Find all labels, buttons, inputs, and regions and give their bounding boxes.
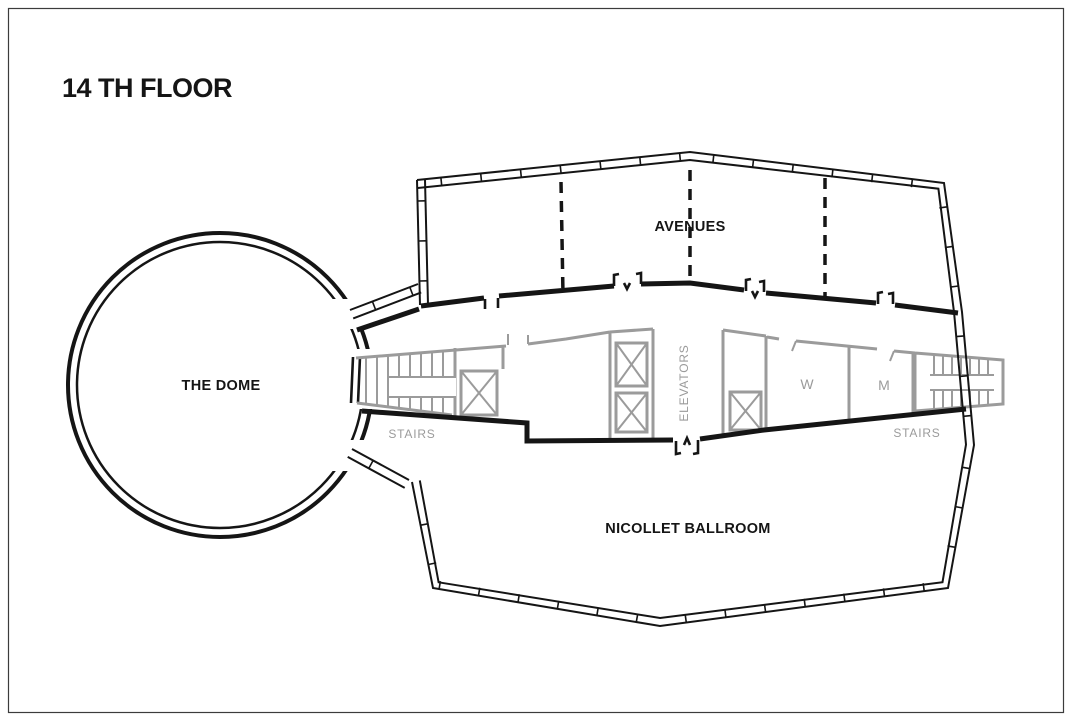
dome-label: THE DOME [182,378,261,394]
avenues-label: AVENUES [654,219,725,235]
elevators-label: ELEVATORS [677,344,691,421]
women-restroom-label: W [800,376,814,392]
dome-upper-opening [330,299,364,329]
ballroom-label: NICOLLET BALLROOM [605,521,770,537]
floor-plan-svg: 14 TH FLOOR THE DOME AVENUES NICOLLET BA… [0,0,1072,721]
stairs-left-label: STAIRS [388,427,435,441]
dome-lower-opening [330,440,364,471]
stairs-right-label: STAIRS [893,426,940,440]
floor-title: 14 TH FLOOR [62,73,232,103]
men-restroom-label: M [878,377,890,393]
page-frame [9,9,1064,713]
